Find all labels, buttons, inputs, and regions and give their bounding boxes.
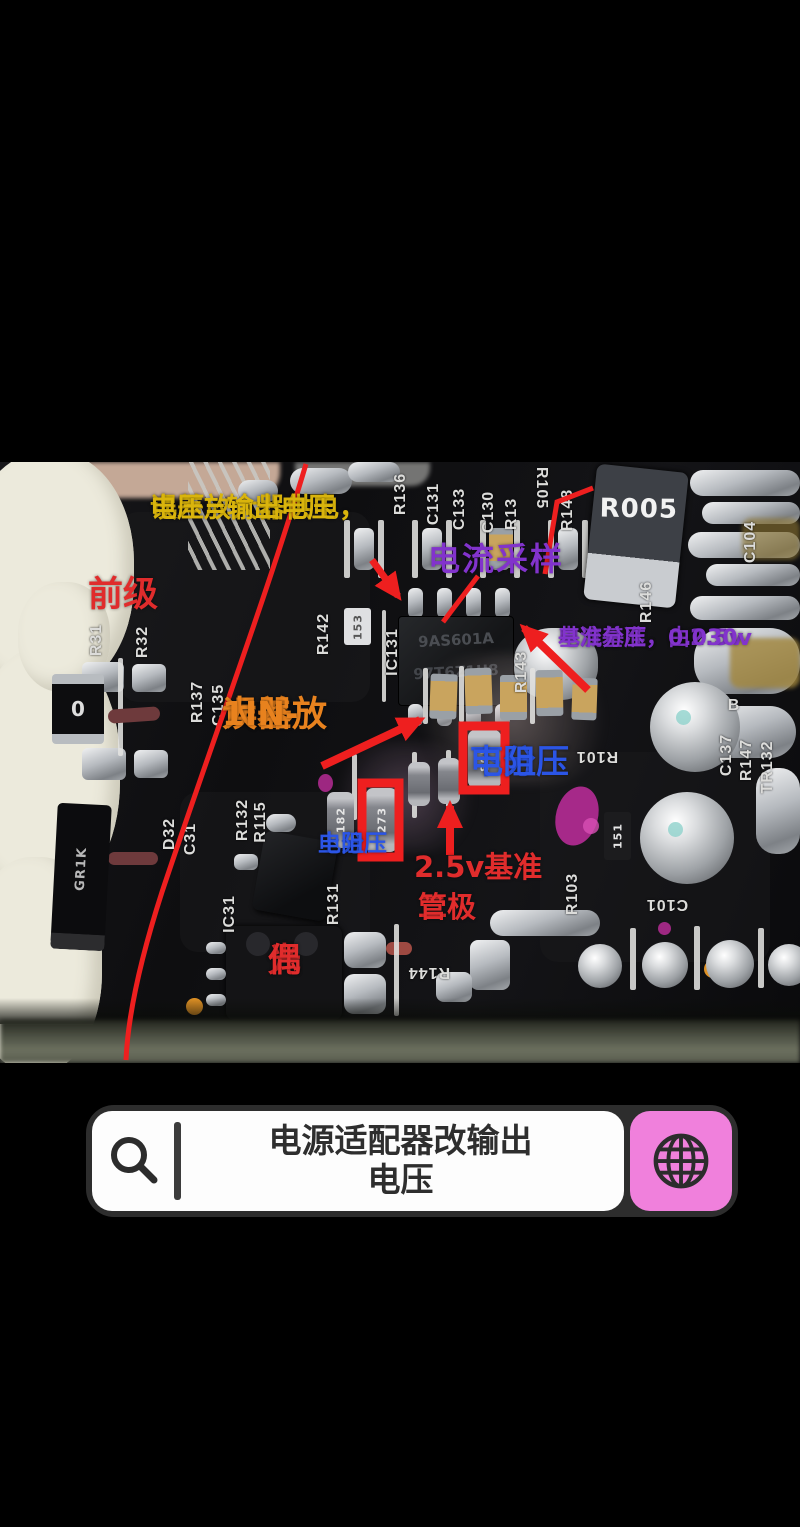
annotation-diode-line2: 管 (418, 890, 447, 926)
search-icon (108, 1134, 162, 1188)
web-search-button[interactable] (630, 1111, 732, 1211)
annotation-current-sampling: 电流采样 (428, 540, 564, 580)
annotation-current-ref-line2: 基准分压，0.030v (558, 625, 752, 652)
annotation-optocoupler-line2: 偶 (268, 940, 301, 981)
arrow-supply-to-chip (372, 560, 398, 596)
search-input[interactable]: 电源适配器改输出 电压 (92, 1111, 624, 1211)
annotation-upper-divider-line2: 电阻 (318, 830, 364, 859)
annotation-vref: 2.5v基准 (414, 850, 542, 886)
current-sampling-strike (443, 576, 478, 622)
app-screen: { "overlay": { "supply1": "误差放大器供电，", "s… (0, 0, 800, 1527)
globe-icon (650, 1130, 712, 1192)
annotation-error-amp-line3: 1IN- (222, 694, 299, 735)
search-query-line1: 电源适配器改输出 (181, 1122, 620, 1161)
annotation-marks (0, 462, 800, 1063)
pcb-photo: R005 9AS601A 97T6Z1U8 182 273 805 (0, 462, 800, 1063)
search-bar[interactable]: 电源适配器改输出 电压 (86, 1105, 738, 1217)
text-cursor (174, 1122, 181, 1200)
search-query-line2: 电压 (181, 1161, 620, 1200)
annotation-supply-line2: 电压=输出电压 (150, 492, 335, 525)
search-query: 电源适配器改输出 电压 (181, 1122, 624, 1200)
annotation-lower-divider-line2: 电阻 (470, 742, 536, 783)
annotation-front-stage: 前级 (88, 574, 158, 617)
arrow-error-amp (322, 720, 420, 766)
